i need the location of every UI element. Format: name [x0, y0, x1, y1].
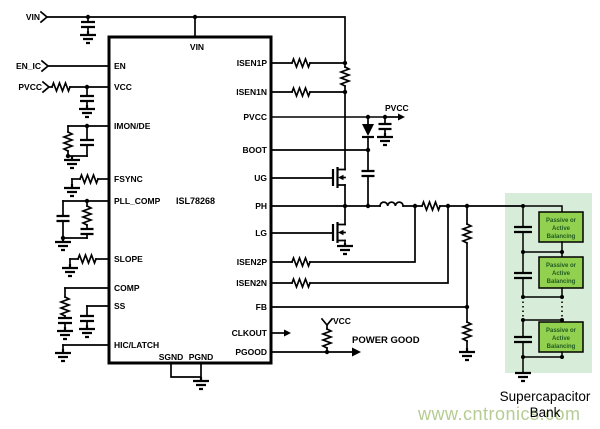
- boot-diode: [362, 117, 374, 150]
- pin-label-pgnd: PGND: [189, 352, 214, 362]
- bank-title-line1: Supercapacitor: [500, 389, 591, 404]
- svg-text:Balancing: Balancing: [547, 344, 576, 350]
- pvcc-capacitor: [379, 117, 392, 133]
- high-side-mosfet: [271, 92, 345, 206]
- pin-label-fb: FB: [256, 302, 267, 312]
- en-ic-input-label: EN_IC: [16, 61, 41, 71]
- pin-label-pgood: PGOOD: [235, 347, 267, 357]
- svg-text:Passive or: Passive or: [546, 218, 577, 224]
- pin-label-boot: BOOT: [242, 145, 267, 155]
- capacitor: [58, 316, 72, 327]
- ground-symbol: [57, 327, 73, 339]
- output-power-rail: [271, 202, 523, 210]
- svg-text:Active: Active: [552, 271, 571, 277]
- ground-symbol: [62, 264, 78, 276]
- svg-text:Passive or: Passive or: [546, 263, 577, 269]
- clkout-arrowhead: [284, 330, 291, 337]
- mosfet-body-arrow: [338, 175, 344, 180]
- fsync-network: [64, 175, 109, 196]
- pin-label-imon-de: IMON/DE: [114, 121, 151, 131]
- svg-text:Balancing: Balancing: [547, 279, 576, 285]
- en-connector-chevron: [42, 61, 48, 71]
- pvcc-connector-chevron: [43, 82, 49, 92]
- pvcc-input-net: PVCC: [18, 82, 109, 117]
- capacitor: [81, 225, 94, 238]
- vcc-rail-label: VCC: [333, 316, 351, 326]
- pin-label-ph: PH: [255, 201, 267, 211]
- capacitor: [80, 306, 94, 325]
- boot-capacitor: [362, 150, 375, 206]
- ground-symbol: [55, 349, 71, 361]
- pin-label-en: EN: [114, 61, 126, 71]
- resistor: [61, 297, 69, 316]
- resistor: [52, 83, 70, 91]
- pin-label-isen2n: ISEN2N: [236, 278, 267, 288]
- svg-text:Active: Active: [552, 336, 571, 342]
- ic-isl78268: VIN ISL78268 EN VCC IMON/DE FSYNC PLL_CO…: [109, 37, 271, 363]
- resistor: [292, 88, 310, 96]
- pin-label-ug: UG: [254, 173, 267, 183]
- pll-comp-network: [55, 201, 109, 250]
- isen1-network: [271, 59, 349, 96]
- capacitor: [57, 201, 70, 238]
- pin-label-sgnd: SGND: [159, 352, 184, 362]
- bank-title-line2: Bank: [530, 405, 561, 420]
- sgnd-pgnd-ground: [171, 363, 209, 389]
- vin-input-label: VIN: [26, 12, 40, 22]
- comp-network: [57, 288, 109, 339]
- schematic-page: VIN EN_IC PVCC: [0, 0, 600, 429]
- resistor: [80, 175, 98, 183]
- ground-symbol: [193, 377, 209, 389]
- en-input-net: EN_IC: [16, 61, 109, 71]
- pin-label-slope: SLOPE: [114, 254, 143, 264]
- ground-symbol: [64, 184, 80, 196]
- ground-symbol: [64, 156, 80, 168]
- capacitor: [80, 126, 94, 156]
- vcc-decoupling-capacitor: [80, 87, 94, 105]
- resistor: [463, 322, 471, 341]
- power-good-arrowhead: [352, 348, 361, 357]
- pvcc-input-label: PVCC: [18, 82, 42, 92]
- ground-symbol: [459, 348, 475, 360]
- resistor: [292, 258, 310, 266]
- vcc-connector-chevron: [322, 319, 332, 325]
- ground-symbol: [79, 325, 95, 337]
- ground-symbol: [80, 31, 96, 43]
- pin-label-ss: SS: [114, 301, 126, 311]
- ground-symbol: [377, 133, 393, 145]
- pvcc-rail-label: PVCC: [385, 103, 409, 113]
- pin-label-fsync: FSYNC: [114, 174, 143, 184]
- imon-de-network: [64, 126, 109, 168]
- resistor: [292, 279, 310, 287]
- vin-connector-chevron: [41, 12, 47, 22]
- pin-label-isen1n: ISEN1N: [236, 87, 267, 97]
- pin-label-hic-latch: HIC/LATCH: [114, 340, 159, 350]
- power-good-label: POWER GOOD: [352, 335, 420, 346]
- circuit-schematic: VIN EN_IC PVCC: [0, 0, 600, 429]
- resistor: [463, 224, 471, 243]
- ground-symbol: [79, 105, 95, 117]
- pin-label-lg: LG: [255, 228, 267, 238]
- resistor: [341, 67, 349, 86]
- ground-symbol: [337, 243, 353, 254]
- resistor: [83, 206, 91, 225]
- pin-label-isen2p: ISEN2P: [237, 257, 268, 267]
- svg-text:Passive or: Passive or: [546, 328, 577, 334]
- svg-text:Balancing: Balancing: [547, 234, 576, 240]
- resistor: [292, 59, 310, 67]
- pgood-network: VCC POWER GOOD: [271, 316, 420, 357]
- ic-part-number: ISL78268: [176, 196, 215, 206]
- isen2-network: [271, 206, 448, 287]
- resistor: [78, 255, 96, 263]
- ground-symbol: [515, 373, 531, 381]
- pin-label-clkout: CLKOUT: [232, 328, 268, 338]
- svg-text:Active: Active: [552, 226, 571, 232]
- pin-label-vin: VIN: [190, 42, 204, 52]
- resistor: [64, 132, 72, 151]
- output-inductor: [380, 202, 403, 206]
- sense-resistor: [422, 202, 440, 210]
- hic-latch-network: [55, 345, 109, 361]
- ss-network: [79, 306, 109, 337]
- pvcc-arrowhead: [398, 114, 405, 121]
- pin-label-isen1p: ISEN1P: [237, 58, 268, 68]
- pin-label-pvcc: PVCC: [243, 112, 267, 122]
- clkout-arrow: [271, 330, 291, 337]
- pullup-resistor: [323, 329, 331, 348]
- slope-network: [62, 255, 109, 276]
- pin-label-vcc: VCC: [114, 82, 132, 92]
- bootstrap-network: PVCC: [271, 103, 409, 206]
- low-side-mosfet: [271, 206, 353, 254]
- pin-label-comp: COMP: [114, 283, 140, 293]
- pin-label-pll-comp: PLL_COMP: [114, 196, 161, 206]
- mosfet-body-arrow: [338, 230, 344, 235]
